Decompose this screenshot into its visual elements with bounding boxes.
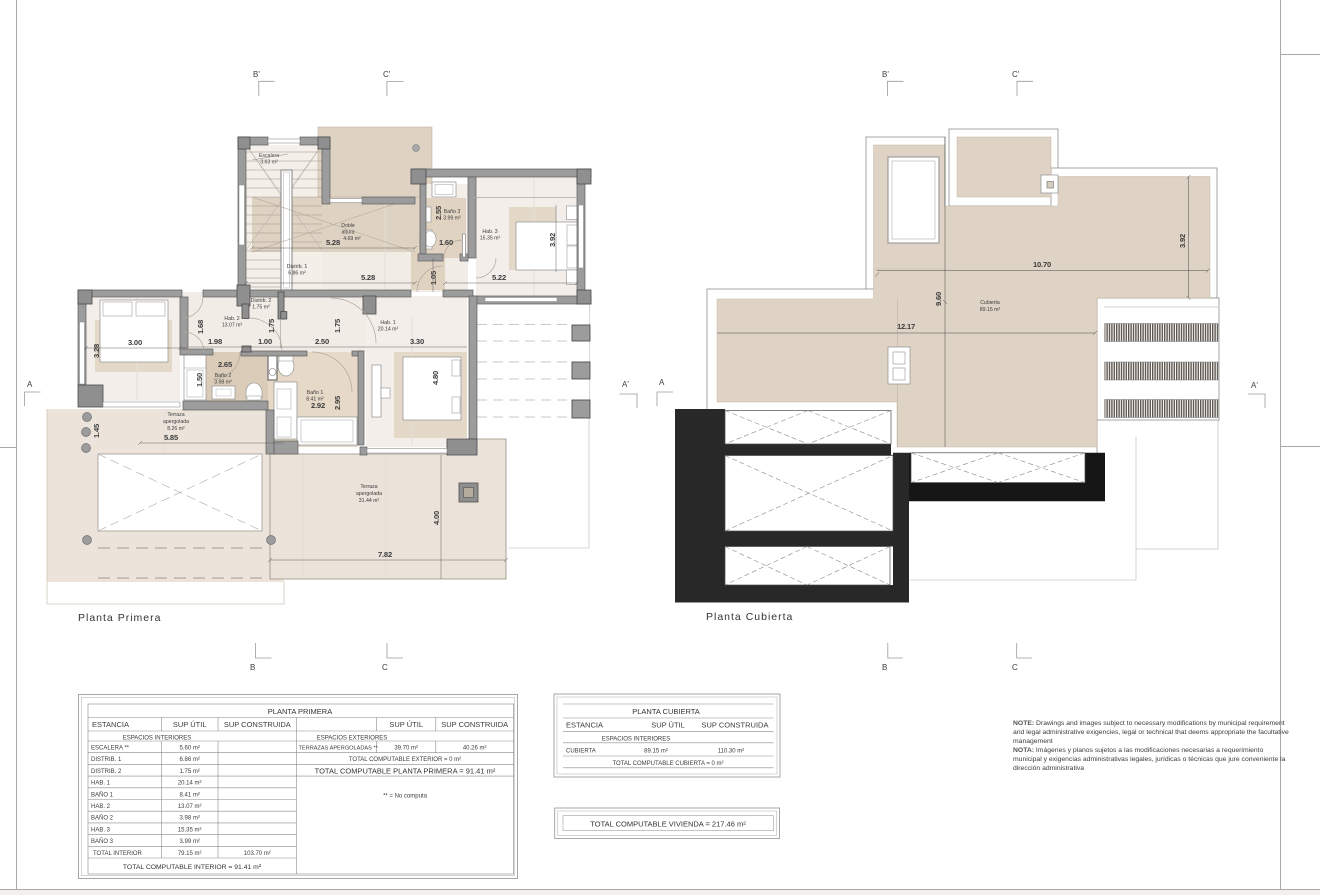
svg-text:dirección administrativa: dirección administrativa bbox=[1013, 765, 1084, 772]
svg-text:4.00: 4.00 bbox=[432, 511, 441, 525]
svg-text:2.65: 2.65 bbox=[218, 360, 233, 369]
svg-text:1.45: 1.45 bbox=[92, 423, 101, 438]
svg-text:SUP ÚTIL: SUP ÚTIL bbox=[651, 721, 685, 730]
svg-text:9.60: 9.60 bbox=[934, 292, 943, 306]
svg-text:8.41 m²: 8.41 m² bbox=[306, 397, 324, 403]
svg-text:Terraza: Terraza bbox=[360, 484, 377, 490]
svg-text:A': A' bbox=[1251, 381, 1258, 390]
svg-text:B': B' bbox=[882, 70, 889, 79]
svg-text:B: B bbox=[250, 663, 255, 672]
svg-text:1.50: 1.50 bbox=[195, 373, 204, 387]
svg-text:1.75: 1.75 bbox=[333, 318, 342, 333]
svg-text:NOTE: Drawings and images subj: NOTE: Drawings and images subject to nec… bbox=[1013, 720, 1285, 727]
svg-text:6.86 m²: 6.86 m² bbox=[180, 757, 200, 763]
svg-text:8.41 m²: 8.41 m² bbox=[180, 792, 200, 798]
svg-text:C': C' bbox=[1012, 70, 1020, 79]
svg-text:TOTAL COMPUTABLE CUBIERTA = 0: TOTAL COMPUTABLE CUBIERTA = 0 m² bbox=[612, 761, 723, 767]
svg-text:3.00: 3.00 bbox=[128, 338, 142, 347]
svg-text:NOTA: Imágenes y planos sujeto: NOTA: Imágenes y planos sujetos a las mo… bbox=[1013, 747, 1264, 754]
svg-text:SUP CONSTRUIDA: SUP CONSTRUIDA bbox=[702, 721, 769, 730]
svg-text:20.14 m²: 20.14 m² bbox=[178, 781, 202, 787]
svg-text:Planta Cubierta: Planta Cubierta bbox=[706, 611, 793, 623]
svg-text:2.95: 2.95 bbox=[333, 395, 342, 410]
svg-text:Doble: Doble bbox=[341, 223, 355, 229]
svg-text:110.30 m²: 110.30 m² bbox=[718, 749, 745, 755]
svg-text:management: management bbox=[1013, 738, 1053, 745]
svg-text:3.99 m²: 3.99 m² bbox=[443, 216, 461, 222]
svg-text:Hab. 3: Hab. 3 bbox=[482, 229, 497, 235]
svg-text:2.50: 2.50 bbox=[315, 337, 329, 346]
svg-text:Baño 3: Baño 3 bbox=[444, 209, 461, 215]
svg-text:8.26 m²: 8.26 m² bbox=[167, 426, 185, 432]
svg-text:** = No computa: ** = No computa bbox=[383, 794, 428, 800]
svg-text:15.35 m²: 15.35 m² bbox=[480, 236, 501, 242]
svg-text:DISTRIB. 1: DISTRIB. 1 bbox=[91, 757, 122, 763]
svg-text:4.80: 4.80 bbox=[431, 371, 440, 385]
svg-text:12.17: 12.17 bbox=[897, 322, 915, 331]
svg-text:A': A' bbox=[622, 380, 629, 389]
svg-text:B': B' bbox=[253, 70, 260, 79]
svg-text:3.92: 3.92 bbox=[548, 233, 557, 247]
svg-text:Hab. 2: Hab. 2 bbox=[224, 316, 239, 322]
svg-text:C: C bbox=[382, 663, 388, 672]
svg-text:ESTANCIA: ESTANCIA bbox=[92, 720, 129, 729]
svg-text:BAÑO 2: BAÑO 2 bbox=[91, 815, 114, 822]
svg-text:3.92: 3.92 bbox=[1178, 234, 1187, 248]
svg-text:1.68: 1.68 bbox=[196, 320, 205, 334]
svg-text:3.99 m²: 3.99 m² bbox=[180, 839, 200, 845]
svg-text:1.60: 1.60 bbox=[439, 238, 453, 247]
svg-text:PLANTA CUBIERTA: PLANTA CUBIERTA bbox=[632, 707, 700, 716]
svg-text:Hab. 1: Hab. 1 bbox=[380, 320, 395, 326]
svg-text:Distrib. 2: Distrib. 2 bbox=[251, 298, 272, 304]
svg-text:Terraza: Terraza bbox=[167, 412, 184, 418]
svg-text:municipal y exigencias adminis: municipal y exigencias administrativas l… bbox=[1013, 756, 1286, 763]
svg-text:TOTAL COMPUTABLE EXTERIOR = 0: TOTAL COMPUTABLE EXTERIOR = 0 m² bbox=[349, 757, 461, 763]
svg-text:A: A bbox=[659, 378, 665, 387]
svg-text:1.05: 1.05 bbox=[429, 270, 438, 285]
svg-text:TOTAL INTERIOR: TOTAL INTERIOR bbox=[93, 851, 143, 857]
svg-text:SUP ÚTIL: SUP ÚTIL bbox=[389, 720, 423, 729]
svg-text:apergolada: apergolada bbox=[163, 419, 189, 425]
svg-text:31.44 m²: 31.44 m² bbox=[359, 498, 380, 504]
svg-text:CUBIERTA: CUBIERTA bbox=[566, 749, 596, 755]
svg-text:3.28: 3.28 bbox=[92, 344, 101, 358]
svg-text:Distrib. 1: Distrib. 1 bbox=[287, 264, 308, 270]
svg-text:5.22: 5.22 bbox=[492, 273, 506, 282]
svg-text:B: B bbox=[882, 663, 887, 672]
svg-text:79.15 m²: 79.15 m² bbox=[178, 851, 202, 857]
svg-text:13.07 m²: 13.07 m² bbox=[178, 804, 202, 810]
svg-text:7.82: 7.82 bbox=[378, 550, 392, 559]
svg-text:3.30: 3.30 bbox=[410, 337, 424, 346]
svg-text:SUP CONSTRUIDA: SUP CONSTRUIDA bbox=[224, 720, 291, 729]
svg-text:40.26 m²: 40.26 m² bbox=[463, 746, 487, 752]
svg-text:apergolada: apergolada bbox=[356, 491, 382, 497]
svg-text:6.86 m²: 6.86 m² bbox=[288, 271, 306, 277]
svg-text:4.69 m²: 4.69 m² bbox=[343, 236, 361, 242]
svg-text:1.98: 1.98 bbox=[208, 337, 222, 346]
svg-text:13.07 m²: 13.07 m² bbox=[222, 323, 243, 329]
svg-text:5.28: 5.28 bbox=[326, 238, 340, 247]
svg-text:Baño 1: Baño 1 bbox=[307, 390, 324, 396]
svg-text:5.85: 5.85 bbox=[164, 433, 179, 442]
svg-text:ESPACIOS INTERIORES: ESPACIOS INTERIORES bbox=[123, 736, 192, 742]
svg-text:1.75: 1.75 bbox=[267, 318, 276, 333]
svg-text:ESCALERA **: ESCALERA ** bbox=[91, 746, 130, 752]
svg-text:1.75 m²: 1.75 m² bbox=[252, 305, 270, 311]
svg-text:TERRAZAS APERGOLADAS **: TERRAZAS APERGOLADAS ** bbox=[299, 746, 379, 752]
svg-text:89.15 m²: 89.15 m² bbox=[644, 749, 668, 755]
svg-text:A: A bbox=[27, 380, 33, 389]
svg-text:HAB. 2: HAB. 2 bbox=[91, 804, 111, 810]
svg-text:PLANTA PRIMERA: PLANTA PRIMERA bbox=[268, 707, 332, 716]
svg-text:3.98 m²: 3.98 m² bbox=[214, 380, 232, 386]
svg-text:ESPACIOS EXTERIORES: ESPACIOS EXTERIORES bbox=[317, 736, 388, 742]
svg-text:and legal administrative exige: and legal administrative exigencies, leg… bbox=[1013, 729, 1289, 736]
svg-text:HAB. 3: HAB. 3 bbox=[91, 827, 111, 833]
svg-text:BAÑO 1: BAÑO 1 bbox=[91, 791, 114, 798]
svg-text:103.70 m²: 103.70 m² bbox=[244, 851, 271, 857]
svg-text:altura: altura bbox=[342, 230, 355, 236]
svg-text:Baño 2: Baño 2 bbox=[215, 373, 232, 379]
svg-text:5.60 m²: 5.60 m² bbox=[180, 746, 200, 752]
svg-text:TOTAL COMPUTABLE VIVIENDA = 21: TOTAL COMPUTABLE VIVIENDA = 217.46 m² bbox=[590, 820, 746, 829]
svg-text:SUP ÚTIL: SUP ÚTIL bbox=[173, 720, 207, 729]
svg-text:SUP CONSTRUIDA: SUP CONSTRUIDA bbox=[441, 720, 508, 729]
svg-text:HAB. 1: HAB. 1 bbox=[91, 781, 111, 787]
svg-text:10.70: 10.70 bbox=[1033, 260, 1051, 269]
svg-text:3.63 m²: 3.63 m² bbox=[260, 160, 278, 166]
svg-text:ESPACIOS INTERIORES: ESPACIOS INTERIORES bbox=[602, 737, 671, 743]
svg-text:C: C bbox=[1012, 663, 1018, 672]
svg-text:1.00: 1.00 bbox=[258, 337, 272, 346]
svg-text:TOTAL COMPUTABLE INTERIOR = 91: TOTAL COMPUTABLE INTERIOR = 91.41 m² bbox=[123, 864, 262, 871]
svg-text:BAÑO 3: BAÑO 3 bbox=[91, 838, 114, 845]
svg-text:Cubierta: Cubierta bbox=[980, 300, 1000, 306]
svg-text:89.15 m²: 89.15 m² bbox=[980, 307, 1001, 313]
svg-text:DISTRIB. 2: DISTRIB. 2 bbox=[91, 769, 122, 775]
svg-text:5.28: 5.28 bbox=[361, 273, 375, 282]
svg-text:1.75 m²: 1.75 m² bbox=[180, 769, 200, 775]
svg-text:ESTANCIA: ESTANCIA bbox=[566, 721, 603, 730]
svg-text:3.98 m²: 3.98 m² bbox=[180, 816, 200, 822]
svg-text:15.35 m²: 15.35 m² bbox=[178, 827, 202, 833]
svg-text:Planta Primera: Planta Primera bbox=[78, 612, 161, 624]
svg-text:2.55: 2.55 bbox=[434, 205, 443, 220]
svg-text:39.70 m²: 39.70 m² bbox=[394, 746, 418, 752]
svg-text:20.14 m²: 20.14 m² bbox=[378, 327, 399, 333]
svg-text:TOTAL COMPUTABLE PLANTA PRIMER: TOTAL COMPUTABLE PLANTA PRIMERA = 91.41 … bbox=[315, 767, 496, 776]
svg-text:C': C' bbox=[383, 70, 391, 79]
